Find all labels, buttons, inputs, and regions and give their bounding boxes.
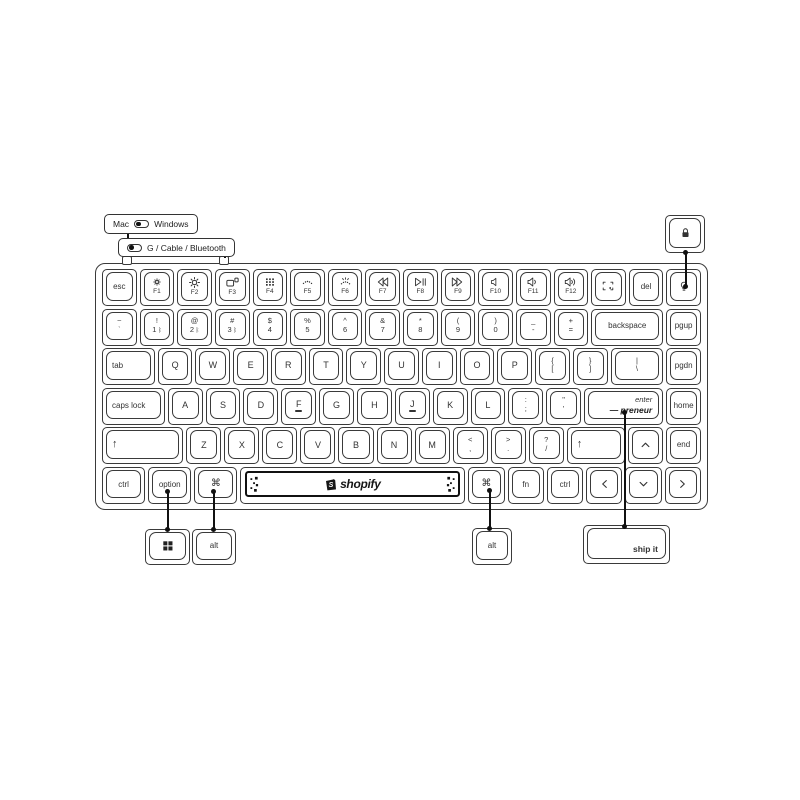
keyboard-body: escF1F2F3F4F5F6F7F8F9F10F11F12del~`!1ᛒ@2… bbox=[95, 263, 708, 510]
home-row: caps lockASDFGHJKL:;"'enter— preneurhome bbox=[102, 388, 701, 425]
play-pause-icon bbox=[414, 277, 427, 287]
key-rcmd: ⌘ bbox=[468, 467, 504, 504]
key-v: V bbox=[300, 427, 335, 464]
key-f1: F1 bbox=[140, 269, 175, 306]
key-legend-top: ! bbox=[156, 317, 158, 326]
ship-it-callout-key: ship it bbox=[583, 525, 670, 564]
mission-control-icon bbox=[226, 277, 239, 288]
key-left bbox=[586, 467, 622, 504]
alt-right-callout-key: alt bbox=[472, 528, 512, 565]
key-8: *8 bbox=[403, 309, 438, 346]
key-minus: _- bbox=[516, 309, 551, 346]
key-legend-bottom: [ bbox=[551, 365, 553, 374]
key-legend-bottom: \ bbox=[636, 365, 638, 374]
key-lctrl: ctrl bbox=[102, 467, 145, 504]
lock-callout-key bbox=[665, 215, 705, 253]
key-label: tab bbox=[112, 361, 123, 370]
key-label: K bbox=[447, 400, 453, 410]
key-f8: F8 bbox=[403, 269, 438, 306]
key-label: M bbox=[428, 440, 436, 450]
key-f6: F6 bbox=[328, 269, 363, 306]
key-label: G bbox=[333, 400, 340, 410]
key-legend-bottom: 2ᛒ bbox=[190, 326, 199, 335]
key-legend-bottom: , bbox=[469, 445, 471, 454]
key-legend-bottom: - bbox=[532, 326, 535, 335]
windows-logo-icon bbox=[162, 540, 174, 552]
key-label: del bbox=[641, 282, 652, 291]
fkey-label: F4 bbox=[266, 288, 274, 295]
key-n: N bbox=[377, 427, 412, 464]
key-right bbox=[665, 467, 701, 504]
brightness-up-icon bbox=[188, 277, 201, 288]
key-0: )0 bbox=[478, 309, 513, 346]
fkey-label: F11 bbox=[528, 288, 539, 295]
key-1: !1ᛒ bbox=[140, 309, 175, 346]
key-label: V bbox=[315, 440, 321, 450]
key-space: Sshopify bbox=[240, 467, 465, 504]
brightness-down-icon bbox=[151, 277, 163, 287]
key-grave: ~` bbox=[102, 309, 137, 346]
key-legend-bottom: ] bbox=[589, 365, 591, 374]
key-label: O bbox=[473, 360, 480, 370]
shopify-logo: Sshopify bbox=[325, 477, 381, 491]
key-label: R bbox=[285, 360, 292, 370]
key-w: W bbox=[195, 348, 230, 385]
backlight-up-icon bbox=[339, 277, 352, 287]
function-row: escF1F2F3F4F5F6F7F8F9F10F11F12del bbox=[102, 269, 701, 306]
key-fn: fn bbox=[508, 467, 544, 504]
key-7: &7 bbox=[365, 309, 400, 346]
key-m: M bbox=[415, 427, 450, 464]
volume-up-icon bbox=[564, 277, 577, 287]
key-k: K bbox=[433, 388, 468, 425]
svg-text:S: S bbox=[329, 482, 334, 489]
key-label: B bbox=[353, 440, 359, 450]
key-9: (9 bbox=[441, 309, 476, 346]
key-y: Y bbox=[346, 348, 381, 385]
mac-label: Mac bbox=[113, 219, 129, 229]
mac-windows-toggle-callout: Mac Windows bbox=[104, 214, 198, 234]
key-label: pgup bbox=[675, 321, 693, 330]
key-s: S bbox=[206, 388, 241, 425]
shopify-bag-icon: S bbox=[325, 478, 337, 491]
connector-dot bbox=[683, 284, 688, 289]
key-label: ctrl bbox=[118, 480, 129, 489]
key-label: Z bbox=[201, 440, 207, 450]
key-screenshot bbox=[591, 269, 626, 306]
key-label: U bbox=[398, 360, 405, 370]
key-label: A bbox=[182, 400, 188, 410]
connection-toggle-callout: G / Cable / Bluetooth bbox=[118, 238, 235, 257]
key-label: alt bbox=[210, 541, 218, 550]
key-legend-bottom: 0 bbox=[493, 326, 497, 335]
chevron-down-icon bbox=[638, 479, 649, 489]
key-p: P bbox=[497, 348, 532, 385]
number-row: ~`!1ᛒ@2ᛒ#3ᛒ$4%5^6&7*8(9)0_-+=backspacepg… bbox=[102, 309, 701, 346]
key-4: $4 bbox=[253, 309, 288, 346]
launchpad-icon bbox=[264, 277, 276, 287]
key-option: option bbox=[148, 467, 191, 504]
fkey-label: F7 bbox=[379, 288, 387, 295]
key-rshift: ↑ bbox=[567, 427, 625, 464]
key-legend-bottom: 4 bbox=[268, 326, 272, 335]
fast-forward-icon bbox=[451, 277, 464, 287]
key-down bbox=[625, 467, 661, 504]
macwin-switch-notch bbox=[122, 256, 132, 265]
key-l: L bbox=[471, 388, 506, 425]
key-legend-bottom: 3ᛒ bbox=[228, 326, 237, 335]
key-semicolon: :; bbox=[508, 388, 543, 425]
fkey-label: F10 bbox=[490, 288, 501, 295]
key-lshift: ↑ bbox=[102, 427, 183, 464]
key-del: del bbox=[629, 269, 664, 306]
key-legend-bottom: = bbox=[569, 326, 573, 335]
key-label: S bbox=[220, 400, 226, 410]
key-equals: += bbox=[554, 309, 589, 346]
shopify-wordmark: shopify bbox=[340, 477, 381, 491]
bluetooth-icon: ᛒ bbox=[158, 328, 162, 335]
key-label: H bbox=[371, 400, 378, 410]
key-f5: F5 bbox=[290, 269, 325, 306]
key-label: I bbox=[438, 360, 441, 370]
homing-bar bbox=[409, 410, 416, 412]
key-label: esc bbox=[113, 282, 125, 291]
key-f9: F9 bbox=[441, 269, 476, 306]
fkey-label: F8 bbox=[417, 288, 425, 295]
lock-icon bbox=[679, 227, 692, 239]
key-o: O bbox=[460, 348, 495, 385]
key-pgup: pgup bbox=[666, 309, 701, 346]
key-h: H bbox=[357, 388, 392, 425]
connector-dot bbox=[683, 250, 688, 255]
fkey-label: F12 bbox=[565, 288, 576, 295]
fkey-label: F5 bbox=[304, 288, 312, 295]
key-d: D bbox=[243, 388, 278, 425]
pixel-decoration-left bbox=[250, 476, 259, 493]
key-f12: F12 bbox=[554, 269, 589, 306]
key-f2: F2 bbox=[177, 269, 212, 306]
key-lbracket: {[ bbox=[535, 348, 570, 385]
key-period: >. bbox=[491, 427, 526, 464]
keyboard-illustration: Mac Windows G / Cable / Bluetooth escF1F… bbox=[0, 0, 800, 800]
connector-line-lock-backlight bbox=[685, 252, 687, 286]
key-label: ship it bbox=[633, 544, 658, 554]
key-comma: <, bbox=[453, 427, 488, 464]
key-label: Q bbox=[172, 360, 179, 370]
key-legend-bottom: 9 bbox=[456, 326, 460, 335]
key-pgdn: pgdn bbox=[666, 348, 701, 385]
key-label: N bbox=[391, 440, 398, 450]
key-capslock: caps lock bbox=[102, 388, 165, 425]
key-legend-bottom: ' bbox=[563, 405, 564, 414]
key-label: ctrl bbox=[560, 480, 571, 489]
key-i: I bbox=[422, 348, 457, 385]
connector-line-cmd-alt-left bbox=[213, 492, 215, 530]
key-backspace: backspace bbox=[591, 309, 663, 346]
rewind-icon bbox=[376, 277, 389, 287]
windows-callout-key bbox=[145, 529, 190, 565]
chevron-up-icon bbox=[640, 440, 651, 450]
key-label: option bbox=[159, 480, 181, 489]
key-label: end bbox=[677, 440, 690, 449]
key-label: backspace bbox=[608, 321, 646, 330]
key-label: home bbox=[674, 401, 694, 410]
key-legend-bottom: ` bbox=[118, 326, 121, 335]
preneur-label: — preneur bbox=[610, 405, 653, 415]
pixel-decoration-right bbox=[446, 476, 455, 493]
key-legend-bottom: ; bbox=[525, 405, 527, 414]
fkey-label: F6 bbox=[341, 288, 349, 295]
connector-line-enter-shipit bbox=[624, 412, 626, 526]
connection-label: G / Cable / Bluetooth bbox=[147, 243, 226, 253]
screenshot-icon bbox=[602, 281, 614, 291]
bluetooth-icon: ᛒ bbox=[196, 328, 200, 335]
key-quote: "' bbox=[546, 388, 581, 425]
shift-row: ↑ZXCVBNM<,>.?/↑end bbox=[102, 427, 701, 464]
key-e: E bbox=[233, 348, 268, 385]
key-f: F bbox=[281, 388, 316, 425]
alt-left-callout-key: alt bbox=[192, 529, 236, 565]
key-label: X bbox=[239, 440, 245, 450]
key-home: home bbox=[666, 388, 701, 425]
key-label: pgdn bbox=[675, 361, 693, 370]
fkey-label: F3 bbox=[228, 289, 236, 296]
key-rbracket: }] bbox=[573, 348, 608, 385]
key-up bbox=[628, 427, 663, 464]
key-label: W bbox=[209, 360, 218, 370]
key-f11: F11 bbox=[516, 269, 551, 306]
key-label: E bbox=[248, 360, 254, 370]
key-f7: F7 bbox=[365, 269, 400, 306]
connector-dot bbox=[622, 524, 627, 529]
key-b: B bbox=[338, 427, 373, 464]
chevron-left-icon bbox=[599, 479, 610, 489]
key-esc: esc bbox=[102, 269, 137, 306]
key-legend-bottom: 8 bbox=[418, 326, 422, 335]
key-6: ^6 bbox=[328, 309, 363, 346]
key-q: Q bbox=[158, 348, 193, 385]
connector-line-cmd-alt-right bbox=[489, 491, 491, 529]
key-rctrl: ctrl bbox=[547, 467, 583, 504]
key-legend-bottom: 1ᛒ bbox=[152, 326, 161, 335]
key-c: C bbox=[262, 427, 297, 464]
key-end: end bbox=[666, 427, 701, 464]
key-a: A bbox=[168, 388, 203, 425]
key-lcmd: ⌘ bbox=[194, 467, 237, 504]
key-legend-bottom: 7 bbox=[381, 326, 385, 335]
key-f3: F3 bbox=[215, 269, 250, 306]
key-r: R bbox=[271, 348, 306, 385]
key-label: J bbox=[410, 399, 415, 409]
key-x: X bbox=[224, 427, 259, 464]
key-u: U bbox=[384, 348, 419, 385]
mute-icon bbox=[490, 277, 501, 287]
fkey-label: F1 bbox=[153, 288, 161, 295]
key-legend-bottom: 6 bbox=[343, 326, 347, 335]
key-tab: tab bbox=[102, 348, 155, 385]
connection-toggle-switch-icon bbox=[127, 244, 142, 252]
key-2: @2ᛒ bbox=[177, 309, 212, 346]
command-icon: ⌘ bbox=[211, 479, 221, 489]
key-label: P bbox=[512, 360, 518, 370]
key-3: #3ᛒ bbox=[215, 309, 250, 346]
key-legend-bottom: . bbox=[507, 445, 509, 454]
enter-label: enter bbox=[635, 395, 652, 404]
key-label: C bbox=[277, 440, 284, 450]
key-label: ↑ bbox=[577, 439, 583, 450]
key-legend-bottom: / bbox=[545, 445, 547, 454]
key-label: ↑ bbox=[112, 439, 118, 450]
key-legend-bottom: 5 bbox=[305, 326, 309, 335]
homing-bar bbox=[295, 410, 302, 412]
chevron-right-icon bbox=[677, 479, 688, 489]
tab-row: tabQWERTYUIOP{[}]|\pgdn bbox=[102, 348, 701, 385]
key-label: caps lock bbox=[112, 401, 145, 410]
key-5: %5 bbox=[290, 309, 325, 346]
windows-label: Windows bbox=[154, 219, 188, 229]
key-label: alt bbox=[488, 541, 496, 550]
key-label: D bbox=[258, 400, 265, 410]
volume-down-icon bbox=[527, 277, 539, 287]
key-t: T bbox=[309, 348, 344, 385]
fkey-label: F9 bbox=[454, 288, 462, 295]
key-slash: ?/ bbox=[529, 427, 564, 464]
key-z: Z bbox=[186, 427, 221, 464]
os-toggle-switch-icon bbox=[134, 220, 149, 228]
key-f4: F4 bbox=[253, 269, 288, 306]
key-g: G bbox=[319, 388, 354, 425]
key-label: Y bbox=[361, 360, 367, 370]
key-f10: F10 bbox=[478, 269, 513, 306]
key-j: J bbox=[395, 388, 430, 425]
backlight-down-icon bbox=[301, 277, 314, 287]
key-label: fn bbox=[522, 480, 529, 489]
bluetooth-icon: ᛒ bbox=[233, 328, 237, 335]
key-backslash: |\ bbox=[611, 348, 664, 385]
key-label: F bbox=[296, 399, 302, 409]
key-label: L bbox=[485, 400, 490, 410]
connector-line-option-winkey bbox=[167, 492, 169, 530]
key-label: T bbox=[323, 360, 329, 370]
fkey-label: F2 bbox=[191, 289, 199, 296]
bottom-row: ctrloption⌘Sshopify⌘fnctrl bbox=[102, 467, 701, 504]
